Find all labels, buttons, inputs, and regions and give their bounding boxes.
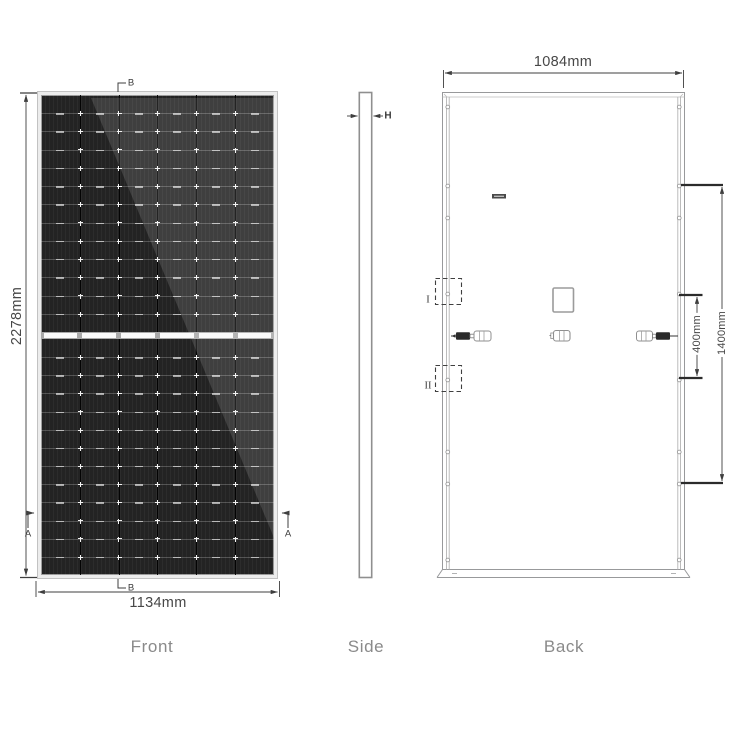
mounting-hole — [677, 482, 681, 486]
mounting-hole — [446, 450, 450, 454]
mounting-hole — [677, 450, 681, 454]
front-view-label: Front — [131, 637, 174, 657]
junction-box — [553, 288, 574, 312]
side-view-label: Side — [348, 637, 384, 657]
front-section-b-markers — [118, 83, 126, 588]
front-section-b-top-label: B — [128, 78, 134, 89]
mounting-hole — [446, 482, 450, 486]
mounting-hole — [446, 184, 450, 188]
back-width-dimension — [444, 70, 684, 88]
back-detail-1-label: I — [426, 295, 430, 306]
mounting-hole — [446, 558, 450, 562]
mechanical-drawing: 2278mm 1134mm B B A A Front H Side 1084m… — [0, 0, 750, 750]
mounting-hole — [677, 105, 681, 109]
front-section-b-bottom-label: B — [128, 583, 134, 594]
back-detail-2-label: II — [425, 381, 432, 392]
front-height-label: 2278mm — [9, 287, 25, 345]
side-thickness-label: H — [384, 111, 391, 122]
front-detail-a-markers — [28, 513, 288, 528]
mounting-hole — [677, 184, 681, 188]
mounting-hole — [446, 216, 450, 220]
front-detail-a-right-label: A — [285, 529, 291, 540]
back-width-label: 1084mm — [534, 54, 592, 70]
mounting-hole — [677, 216, 681, 220]
front-detail-a-left-label: A — [25, 529, 31, 540]
serial-label — [492, 194, 506, 199]
mounting-hole — [446, 105, 450, 109]
back-hole-spacing-inner-label: 400mm — [691, 313, 703, 355]
mounting-hole — [446, 378, 450, 382]
side-view-outline — [347, 93, 383, 578]
front-width-label: 1134mm — [129, 595, 186, 611]
back-hole-spacing-outer-label: 1400mm — [716, 309, 728, 357]
mounting-hole — [446, 292, 450, 296]
back-view-label: Back — [544, 637, 584, 657]
mounting-hole — [677, 558, 681, 562]
